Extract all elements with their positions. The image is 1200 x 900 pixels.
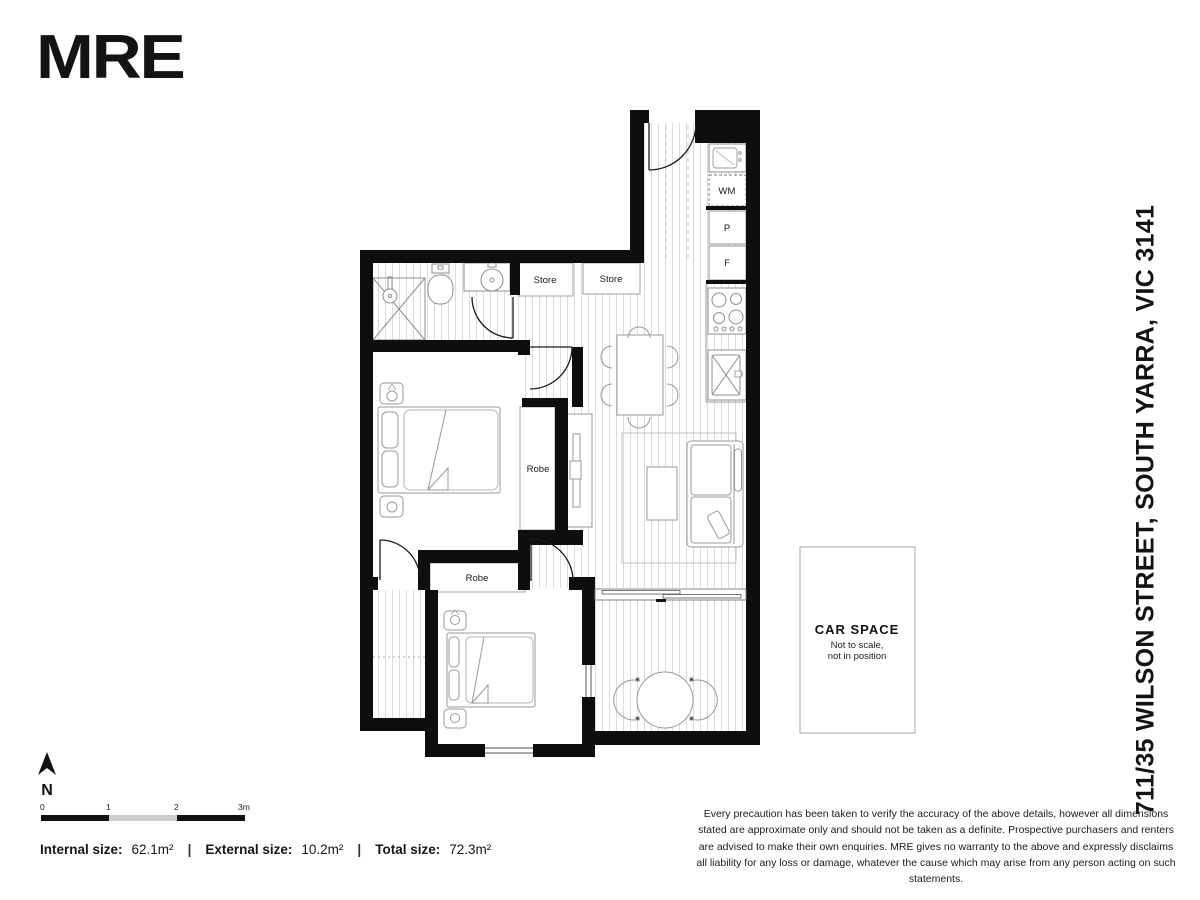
car-space: CAR SPACE Not to scale, not in position [800, 547, 915, 733]
kitchen-laundry-column [706, 144, 746, 402]
kitchen-sink [708, 350, 746, 400]
store2-label: Store [600, 274, 623, 285]
scale-tick-2: 2 [174, 802, 179, 812]
mre-logo: MRE [36, 22, 184, 93]
scale-tick-0: 0 [40, 802, 45, 812]
scale-seg-1 [41, 815, 109, 821]
internal-size-value: 62.1m² [132, 842, 174, 857]
north-arrow-icon: N [34, 750, 64, 802]
wall [373, 340, 520, 352]
store1-label: Store [534, 275, 557, 286]
wall [418, 550, 522, 563]
separator: | [188, 842, 192, 857]
disclaimer-text: Every precaution has been taken to verif… [694, 806, 1178, 887]
wall [518, 545, 530, 590]
car-space-note2: not in position [828, 651, 887, 662]
bed1-lamp [387, 391, 397, 401]
scale-tick-3: 3m [238, 802, 250, 812]
balcony-table [637, 672, 693, 728]
wall [425, 744, 485, 757]
external-size-value: 10.2m² [301, 842, 343, 857]
wall [630, 110, 644, 263]
wall [746, 110, 760, 745]
wm-label: WM [719, 186, 736, 197]
bedroom2-window-east [582, 665, 595, 697]
cooktop [708, 288, 746, 334]
north-label: N [41, 782, 53, 799]
wall [695, 110, 746, 143]
wall [360, 250, 644, 263]
toilet-bowl [428, 275, 453, 304]
wall [510, 263, 520, 295]
wall [360, 577, 378, 590]
vanity-basin [481, 269, 503, 291]
robe1-label: Robe [527, 464, 550, 475]
separator: | [357, 842, 361, 857]
scale-tick-1: 1 [106, 802, 111, 812]
wall [582, 590, 595, 665]
pantry-label: P [724, 223, 730, 234]
floorplan-page: { "logo": "MRE", "address": "711/35 WILS… [0, 0, 1200, 900]
scale-bar: 0 1 2 3m [40, 802, 252, 824]
size-summary: Internal size: 62.1m² | External size: 1… [40, 842, 491, 857]
north-arrow: N [34, 750, 64, 802]
internal-size-label: Internal size: [40, 842, 123, 857]
wall [582, 731, 760, 745]
total-size-value: 72.3m² [449, 842, 491, 857]
wall [582, 697, 595, 757]
car-space-title: CAR SPACE [815, 622, 900, 637]
wall [360, 250, 373, 723]
scale-seg-3 [177, 815, 245, 821]
terrace-floor [373, 590, 425, 718]
wall [572, 347, 583, 407]
shower-head-icon [383, 289, 397, 303]
balcony-sliding-door [595, 589, 746, 602]
wall [518, 530, 583, 545]
scale-seg-2 [109, 815, 177, 821]
wall [518, 340, 530, 355]
dining-table [617, 335, 663, 415]
tv-unit [567, 414, 592, 527]
bedroom2-window-south [485, 744, 533, 757]
fridge-label: F [724, 258, 730, 269]
wall [425, 590, 438, 757]
bed2-lamp [451, 616, 460, 625]
floor-plan-svg: WM P F Store Store Robe Robe CAR SPACE N… [350, 100, 930, 770]
property-address: 711/35 WILSON STREET, SOUTH YARRA, VIC 3… [1132, 205, 1161, 815]
car-space-note1: Not to scale, [831, 640, 884, 651]
sofa [687, 441, 743, 547]
total-size-label: Total size: [375, 842, 440, 857]
robe2-label: Robe [466, 573, 489, 584]
external-size-label: External size: [205, 842, 292, 857]
coffee-table [647, 467, 677, 520]
wall [555, 398, 568, 532]
floor-plan: WM P F Store Store Robe Robe CAR SPACE N… [350, 100, 930, 770]
